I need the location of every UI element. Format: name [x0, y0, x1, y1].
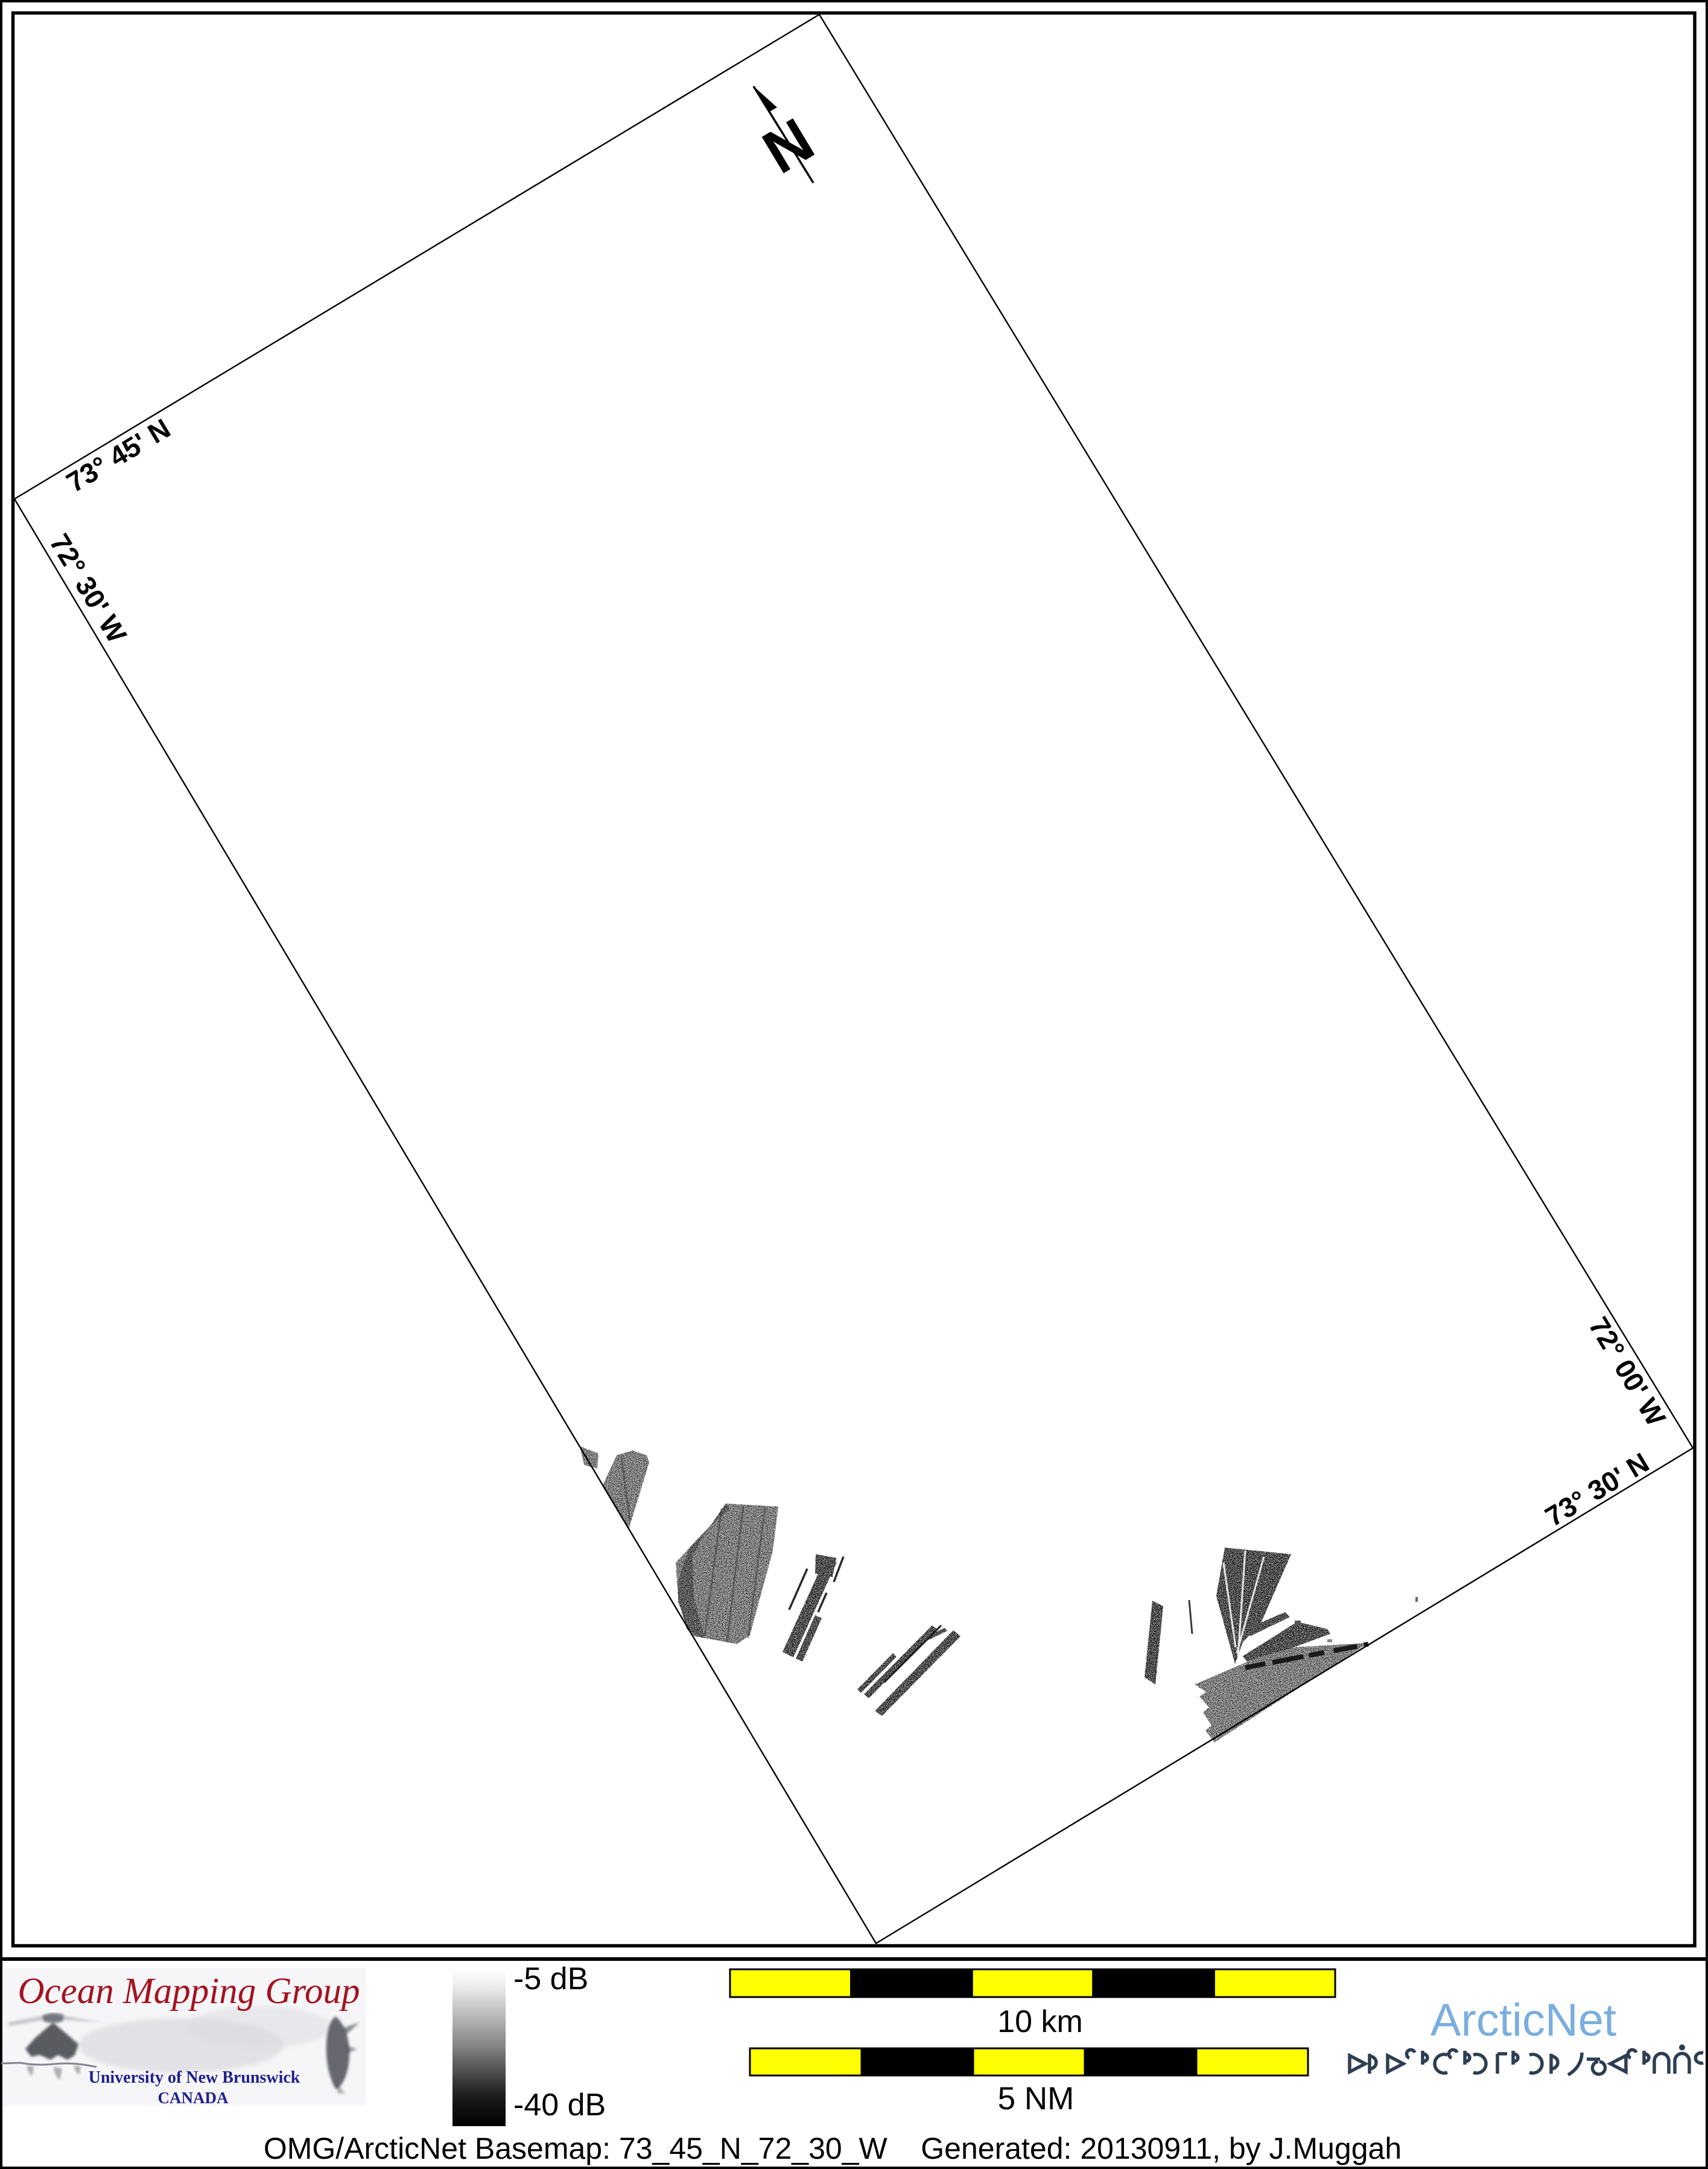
svg-text:-5 dB: -5 dB	[513, 1961, 588, 1996]
svg-text:-40 dB: -40 dB	[513, 2088, 606, 2123]
svg-text:5 NM: 5 NM	[998, 2081, 1075, 2117]
svg-text:OMG/ArcticNet Basemap: 73_45_N: OMG/ArcticNet Basemap: 73_45_N_72_30_W G…	[264, 2132, 1402, 2165]
svg-text:CANADA: CANADA	[158, 2089, 229, 2107]
svg-text:Ocean Mapping Group: Ocean Mapping Group	[18, 1971, 360, 2012]
svg-text:University of New Brunswick: University of New Brunswick	[89, 2068, 300, 2087]
svg-text:ArcticNet: ArcticNet	[1430, 1995, 1616, 2046]
svg-text:10 km: 10 km	[997, 2004, 1083, 2039]
